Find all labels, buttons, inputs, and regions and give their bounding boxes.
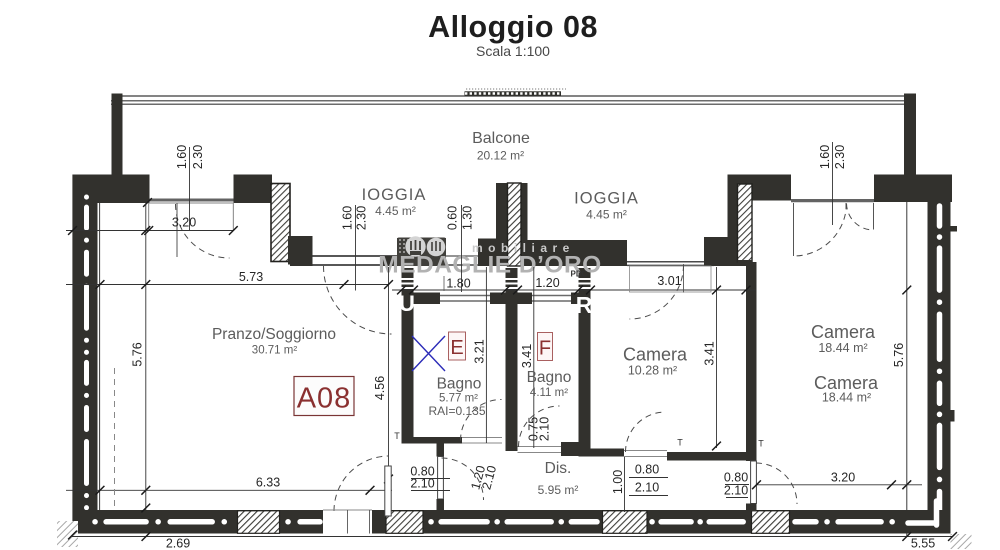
svg-text:1.60: 1.60	[175, 145, 189, 169]
svg-text:T: T	[758, 439, 764, 449]
svg-text:2.30: 2.30	[833, 145, 847, 169]
svg-text:E: E	[450, 337, 463, 359]
svg-text:5.77 m²: 5.77 m²	[439, 393, 478, 405]
svg-text:T: T	[394, 431, 400, 441]
svg-text:5.76: 5.76	[892, 343, 906, 367]
svg-text:3.41: 3.41	[520, 344, 534, 368]
svg-text:3.41: 3.41	[702, 341, 716, 365]
svg-text:20.12 m²: 20.12 m²	[477, 149, 524, 163]
svg-text:3.20: 3.20	[172, 216, 196, 230]
svg-text:PDC: PDC	[571, 270, 588, 279]
svg-text:1.60: 1.60	[340, 206, 354, 230]
svg-text:1.80: 1.80	[446, 277, 470, 291]
svg-text:18.44 m²: 18.44 m²	[818, 341, 867, 355]
svg-text:1.00: 1.00	[611, 470, 625, 494]
svg-text:U: U	[399, 291, 415, 316]
svg-text:4.11 m²: 4.11 m²	[530, 387, 568, 399]
svg-text:4.45 m²: 4.45 m²	[375, 204, 416, 218]
svg-text:0.80: 0.80	[635, 463, 659, 477]
svg-text:Camera: Camera	[811, 322, 876, 342]
svg-text:Bagno: Bagno	[437, 376, 482, 393]
svg-text:5.76: 5.76	[130, 342, 144, 366]
svg-text:F: F	[539, 338, 551, 360]
svg-text:4.45 m²: 4.45 m²	[586, 208, 627, 222]
svg-text:R: R	[576, 292, 593, 318]
svg-text:Camera: Camera	[623, 345, 688, 365]
svg-text:A08: A08	[297, 383, 352, 415]
svg-text:1.30: 1.30	[460, 206, 474, 230]
svg-text:RAI=0.135: RAI=0.135	[428, 404, 485, 418]
svg-text:Scala 1:100: Scala 1:100	[476, 43, 550, 59]
svg-text:10.28 m²: 10.28 m²	[628, 364, 677, 378]
svg-text:1.20: 1.20	[535, 276, 559, 290]
svg-text:2.10: 2.10	[635, 481, 659, 495]
svg-text:Dis.: Dis.	[545, 460, 572, 477]
svg-text:30.71 m²: 30.71 m²	[252, 345, 298, 357]
svg-text:2.10: 2.10	[537, 417, 551, 441]
svg-text:2.10: 2.10	[410, 477, 434, 491]
svg-text:T: T	[677, 438, 683, 448]
svg-text:Pranzo/Soggiorno: Pranzo/Soggiorno	[212, 326, 336, 343]
svg-text:Bagno: Bagno	[527, 369, 572, 386]
svg-text:5.95 m²: 5.95 m²	[538, 483, 579, 497]
svg-text:3.20: 3.20	[831, 471, 855, 485]
svg-text:0.80: 0.80	[724, 471, 748, 485]
svg-text:Balcone: Balcone	[472, 130, 530, 147]
svg-text:2.10: 2.10	[724, 484, 748, 498]
svg-text:1.60: 1.60	[818, 145, 832, 169]
svg-text:2.30: 2.30	[354, 206, 368, 230]
svg-text:5.73: 5.73	[239, 270, 263, 284]
svg-text:MEDAGLIE D’ORO: MEDAGLIE D’ORO	[378, 252, 601, 279]
svg-text:IOGGIA: IOGGIA	[362, 186, 427, 204]
svg-text:18.44 m²: 18.44 m²	[822, 391, 871, 405]
svg-text:3.01: 3.01	[657, 274, 681, 288]
svg-text:2.30: 2.30	[191, 145, 205, 169]
svg-text:5.55: 5.55	[911, 537, 935, 550]
svg-text:2.69: 2.69	[166, 537, 190, 550]
svg-text:3.21: 3.21	[472, 339, 486, 363]
svg-text:6.33: 6.33	[256, 476, 280, 490]
svg-text:0.60: 0.60	[445, 206, 459, 230]
svg-text:IOGGIA: IOGGIA	[574, 190, 639, 208]
svg-text:4.56: 4.56	[373, 376, 387, 400]
svg-text:Alloggio 08: Alloggio 08	[428, 10, 598, 44]
